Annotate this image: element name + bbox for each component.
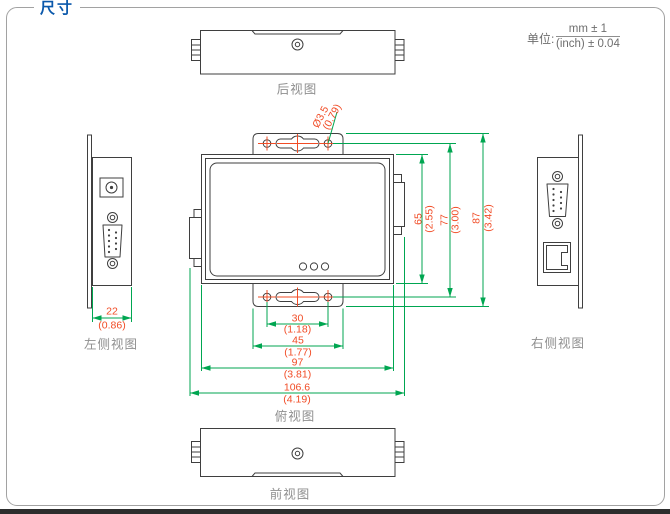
- unit-label: 单位:: [527, 30, 554, 47]
- dc-power-jack: [100, 178, 123, 197]
- top-left-connector-profile: [190, 210, 202, 267]
- db9-screw-hole: [108, 259, 118, 269]
- unit-inch: (inch) ± 0.04: [556, 37, 620, 50]
- dim-22-inch: (0.86): [98, 320, 125, 331]
- connector-screw-post: [394, 227, 402, 235]
- front-view-label: 前视图: [270, 484, 311, 503]
- left-side-view-label: 左侧视图: [84, 334, 138, 353]
- db9-screw-hole: [108, 213, 118, 223]
- dimensions-page: 尺寸 单位: mm ± 1 (inch) ± 0.04 后视图 俯视图 前视图 …: [0, 0, 670, 514]
- dim-77-inch: (3.00): [451, 206, 462, 233]
- dim-45-mm: 45: [292, 335, 304, 346]
- led-indicators: [299, 263, 328, 270]
- connector-body: [394, 183, 405, 227]
- left-side-view-drawing: [88, 135, 132, 308]
- unit-mm: mm ± 1: [556, 23, 620, 37]
- dim-87-mm: 87: [472, 212, 483, 224]
- led-icon: [321, 263, 328, 270]
- dim-106-mm: 106.6: [284, 382, 310, 393]
- connector-screw-post: [194, 210, 202, 218]
- db9-screw-hole: [553, 219, 563, 229]
- db9-shell: [103, 225, 122, 257]
- dim-106-inch: (4.19): [283, 394, 310, 405]
- dc-jack-pin: [110, 186, 113, 189]
- rear-body: [201, 31, 396, 75]
- db9-shell: [547, 184, 568, 217]
- led-icon: [310, 263, 317, 270]
- top-right-connector-profile: [394, 175, 405, 235]
- rj45-bezel: [544, 243, 571, 273]
- dim-22-mm: 22: [106, 307, 118, 318]
- left-panel-flange: [88, 135, 92, 308]
- right-side-view-drawing: [538, 135, 583, 308]
- rear-screw-hole-icon: [292, 39, 303, 50]
- front-view-drawing: [192, 429, 405, 477]
- rear-view-drawing: [192, 31, 405, 75]
- connector-body: [190, 218, 202, 259]
- dim-97-inch: (3.81): [284, 369, 311, 380]
- connector-screw-post: [194, 259, 202, 267]
- top-view-label: 俯视图: [275, 406, 316, 425]
- db9-screw-hole: [553, 172, 563, 182]
- dim-97-mm: 97: [292, 357, 304, 368]
- right-panel-flange: [579, 135, 583, 308]
- led-icon: [299, 263, 306, 270]
- dim-77-mm: 77: [439, 214, 450, 226]
- dim-87-inch: (3.42): [483, 204, 494, 231]
- rear-view-label: 后视图: [277, 79, 318, 98]
- technical-drawing: [0, 0, 670, 514]
- top-body-outer: [202, 155, 394, 284]
- dim-30-mm: 30: [292, 313, 304, 324]
- dim-65-inch: (2.55): [425, 205, 436, 232]
- unit-tolerance: mm ± 1 (inch) ± 0.04: [556, 23, 620, 50]
- top-view-drawing: [190, 134, 405, 307]
- front-screw-hole-icon: [292, 448, 303, 459]
- rj45-port: [544, 243, 571, 273]
- connector-screw-post: [394, 175, 402, 183]
- page-title: 尺寸: [34, 0, 80, 17]
- right-side-view-label: 右侧视图: [531, 333, 585, 352]
